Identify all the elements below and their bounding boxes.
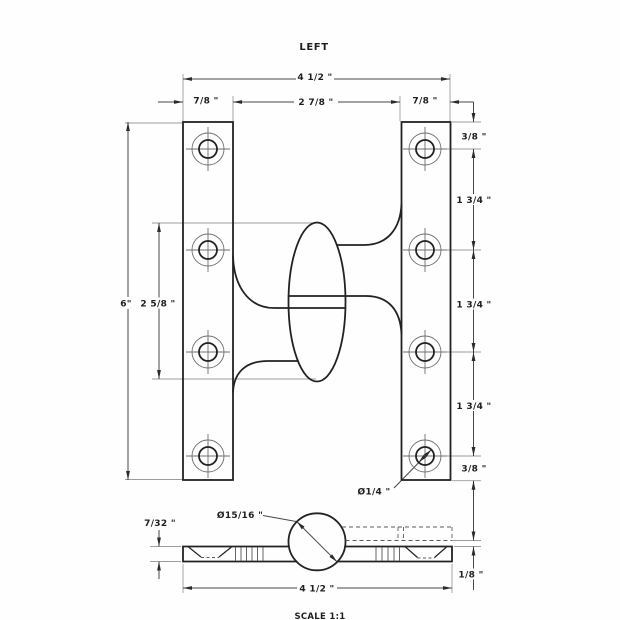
phantom-leaf-position (342, 527, 452, 541)
right-leaf-plate (402, 122, 451, 480)
surface-contour-lines (236, 547, 400, 561)
arrowhead (391, 100, 400, 104)
screw-holes (186, 127, 447, 478)
front-view (183, 122, 451, 480)
arrowhead (472, 532, 476, 541)
arrowhead (157, 223, 161, 232)
dim-label-chain-4: 1 3/4 " (456, 402, 491, 412)
bottom-left-bar (183, 547, 297, 562)
dim-label-center-width: 2 7/8 " (298, 98, 333, 108)
dim-label-right-leaf-width: 7/8 " (412, 97, 437, 107)
dim-label-bottom-overall-width: 4 1/2 " (299, 585, 334, 595)
scale-note: SCALE 1:1 (294, 612, 345, 620)
screw-hole (186, 228, 230, 272)
knuckle-diameter-leader (263, 516, 297, 522)
arrowhead (157, 370, 161, 379)
dim-label-chain-5: 3/8 " (461, 465, 486, 475)
left-leaf-plate (183, 122, 233, 480)
screw-hole (186, 434, 230, 478)
drawing-sheet: LEFT 4 1/2 " 7/8 " 2 7/8 " 7/8 " 6" 2 5/… (0, 0, 620, 620)
right-arm-upper-edge (337, 204, 402, 245)
arrowhead (472, 547, 476, 556)
labels: LEFT 4 1/2 " 7/8 " 2 7/8 " 7/8 " 6" 2 5/… (120, 42, 491, 620)
arrowhead (126, 471, 130, 480)
arrowhead (472, 481, 476, 490)
dim-label-overall-height: 6" (120, 300, 132, 310)
technical-drawing-canvas: LEFT 4 1/2 " 7/8 " 2 7/8 " 7/8 " 6" 2 5/… (0, 0, 620, 620)
arrowhead (233, 100, 242, 104)
left-arm-lower-edge (233, 361, 298, 392)
dim-label-hole-diameter: Ø1/4 " (357, 487, 390, 498)
dim-label-chain-2: 1 3/4 " (456, 196, 491, 206)
arrowhead (157, 562, 161, 571)
extension-lines (125, 74, 481, 593)
dim-label-chain-3: 1 3/4 " (456, 301, 491, 311)
arrowhead (441, 77, 450, 81)
arrowhead (472, 250, 476, 259)
arrowhead (443, 586, 452, 590)
arrowhead (472, 352, 476, 361)
arrowhead (183, 586, 192, 590)
arrowhead (472, 343, 476, 352)
arrowhead (472, 149, 476, 158)
dim-label-overall-width: 4 1/2 " (297, 73, 332, 83)
countersink-right (406, 547, 447, 558)
screw-hole (403, 127, 447, 171)
screw-hole (403, 330, 447, 374)
arrowhead (472, 113, 476, 122)
arrowhead (174, 100, 183, 104)
arrowhead (183, 77, 192, 81)
dim-label-leaf-thickness: 7/32 " (144, 519, 176, 529)
arrowhead (472, 447, 476, 456)
dim-label-knuckle-diameter: Ø15/16 " (217, 510, 263, 521)
dimension-arrowheads (126, 77, 475, 590)
screw-hole (403, 228, 447, 272)
screw-hole (186, 127, 230, 171)
countersink-left (189, 547, 232, 558)
dim-label-left-leaf-width: 7/8 " (193, 97, 218, 107)
knuckle-ellipse (289, 223, 346, 382)
dimension-lines (128, 79, 474, 590)
arrowhead (450, 100, 459, 104)
dim-label-leaf-offset: 1/8 " (458, 571, 483, 581)
dim-label-chain-1: 3/8 " (461, 133, 486, 143)
arrowhead (472, 241, 476, 250)
drawing-title: LEFT (299, 42, 328, 53)
screw-hole (186, 330, 230, 374)
arrowhead (157, 538, 161, 547)
bottom-right-bar (337, 547, 452, 562)
dim-label-knuckle-height: 2 5/8 " (140, 300, 175, 310)
